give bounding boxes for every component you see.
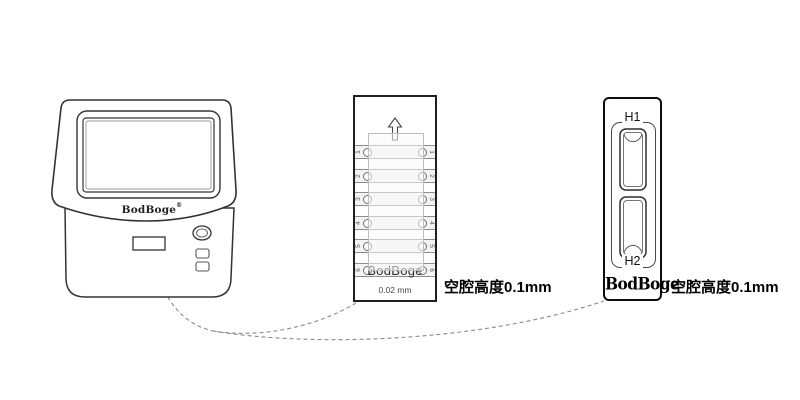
- well-top-label: H1: [605, 111, 660, 124]
- right-slide-brand: BodBoge: [605, 273, 660, 294]
- well-h2: [619, 196, 647, 259]
- middle-slide-caption: 空腔高度0.1mm: [444, 276, 552, 297]
- channel-number-right: 3: [425, 195, 437, 203]
- power-button-icon: [193, 226, 211, 240]
- sample-slot: [133, 237, 165, 250]
- indicator-button-bottom-icon: [196, 262, 209, 271]
- connector-line-right-slide: [213, 301, 604, 340]
- channel-number-right: 5: [425, 242, 437, 250]
- channel-number-right: 1: [425, 148, 437, 156]
- channel-number-right: 4: [425, 219, 437, 227]
- well-top-label-text: H1: [622, 110, 644, 124]
- right-slide-caption: 空腔高度0.1mm: [671, 276, 779, 297]
- well-bottom-label: H2: [605, 255, 660, 268]
- well-h1: [619, 128, 647, 191]
- device-screen-bezel: [77, 111, 220, 198]
- counting-slide-6-channel: 1 1 2 2 3 3 4 4: [353, 95, 437, 302]
- slide-h1-h2: H1 H2 BodBoge: [603, 97, 662, 301]
- device-brand-label: BodBoge®: [112, 202, 192, 216]
- indicator-button-top-icon: [196, 249, 209, 258]
- middle-slide-thickness: 0.02 mm: [355, 285, 435, 295]
- diagram-canvas: BodBoge® 1 1 2 2 3 3: [0, 0, 800, 400]
- channel-number-right: 2: [425, 172, 437, 180]
- coverslip-overlay: [368, 133, 424, 271]
- well-bottom-label-text: H2: [622, 254, 644, 268]
- device-brand-mark: ®: [176, 202, 182, 209]
- device-brand-text: BodBoge: [122, 204, 177, 216]
- analyzer-device: [50, 90, 250, 310]
